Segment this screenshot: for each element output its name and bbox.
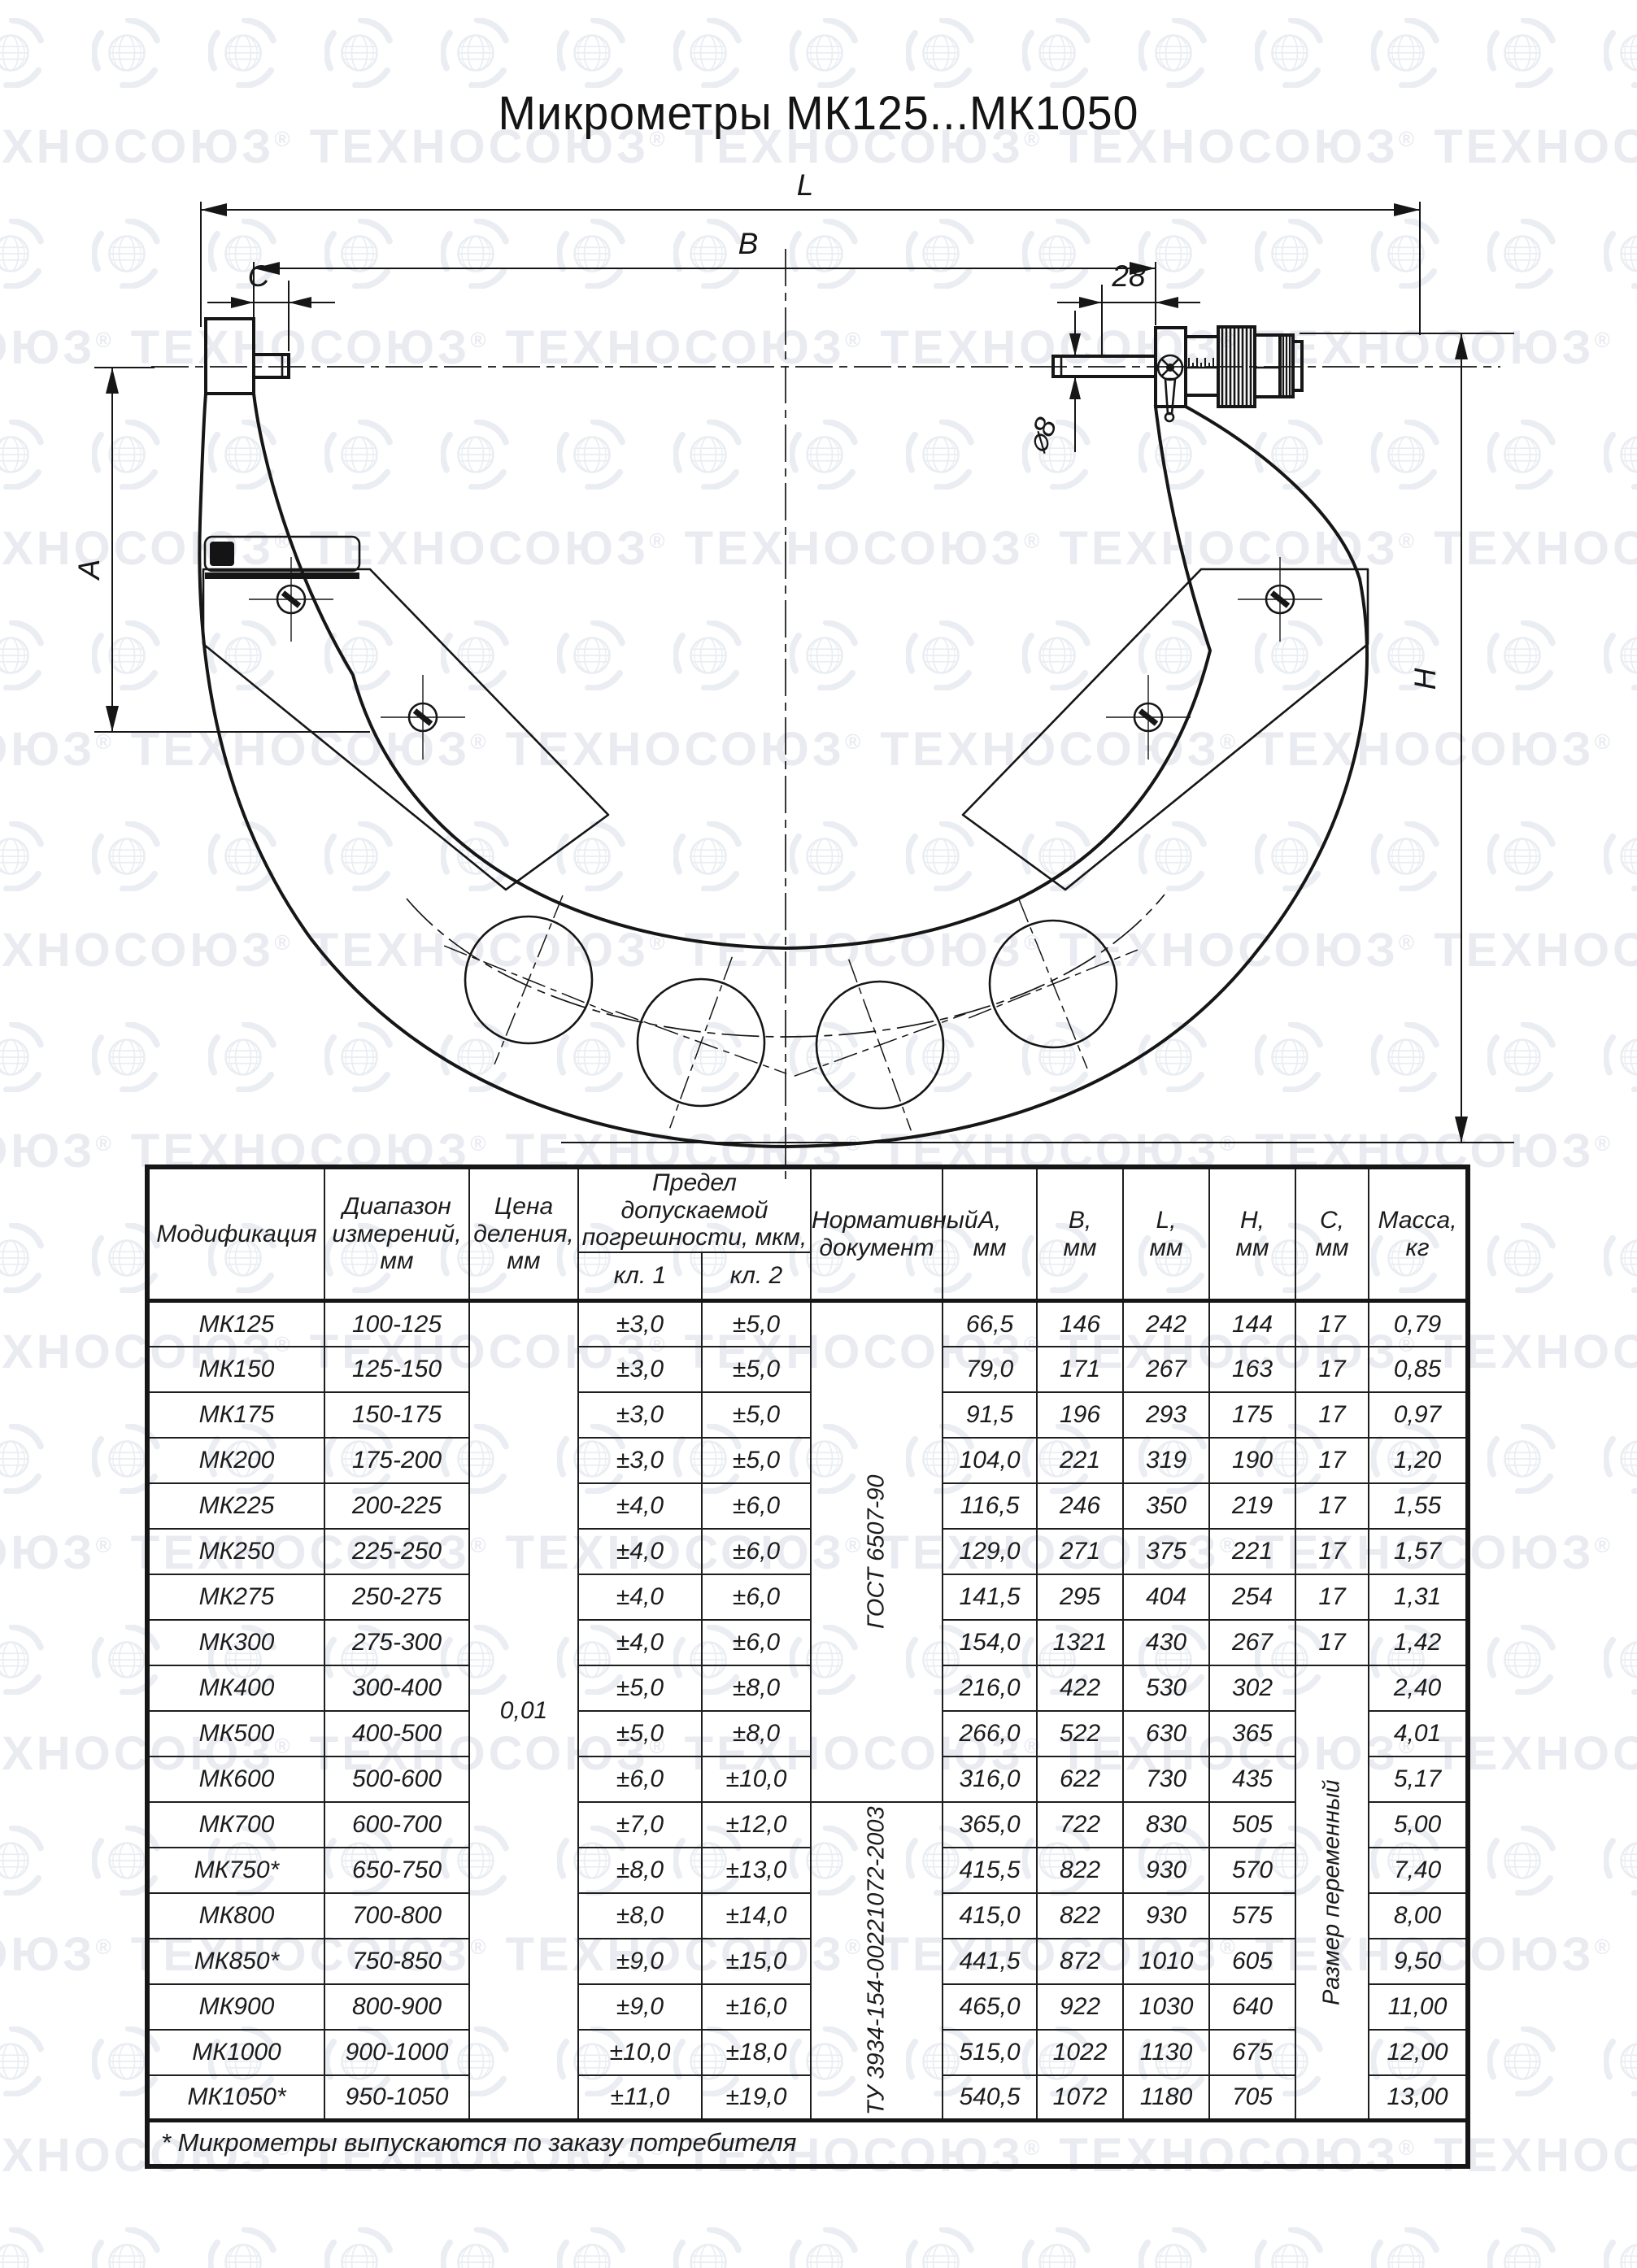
cell-a: 441,5 [943,1939,1037,1984]
cell-mass: 9,50 [1369,1939,1468,1984]
name-plate [205,537,359,576]
cell-mass: 0,85 [1369,1347,1468,1392]
dim-label-28: 28 [1111,259,1146,293]
cell-error-class2: ±12,0 [702,1802,811,1848]
watermark-globe-icon [1596,1627,1637,1703]
cell-a: 66,5 [943,1301,1037,1347]
cell-a: 216,0 [943,1665,1037,1711]
cell-b: 221 [1037,1438,1123,1483]
dimension-dia8: ⌀8 [1019,311,1081,458]
cell-range: 750-850 [324,1939,469,1984]
table-row: МК600500-600±6,0±10,0316,06227304355,17 [147,1757,1468,1802]
cell-range: 250-275 [324,1574,469,1620]
col-header-range: Диапазонизмерений,мм [324,1167,469,1301]
watermark-globe-icon [1479,1426,1552,1502]
lightening-holes [407,861,1172,1161]
cell-error-class1: ±6,0 [578,1757,702,1802]
cell-modification: МК1050* [147,2075,324,2121]
table-footnote: * Микрометры выпускаются по заказу потре… [147,2121,1468,2166]
table-row: МК200175-200±3,0±5,0104,0221319190171,20 [147,1438,1468,1483]
cell-range: 600-700 [324,1802,469,1848]
cell-h: 705 [1209,2075,1295,2121]
cell-mass: 5,00 [1369,1802,1468,1848]
cell-range: 400-500 [324,1711,469,1757]
cell-modification: МК175 [147,1392,324,1438]
frame-outline [199,394,1367,1147]
watermark-globe-icon [1247,2230,1320,2268]
cell-range: 100-125 [324,1301,469,1347]
cell-b: 622 [1037,1757,1123,1802]
col-header-modification: Модификация [147,1167,324,1301]
watermark-globe-icon [898,2230,971,2268]
cell-error-class2: ±10,0 [702,1757,811,1802]
dim-label-b: B [738,227,759,260]
cell-modification: МК400 [147,1665,324,1711]
cell-error-class1: ±3,0 [578,1301,702,1347]
cell-error-class2: ±8,0 [702,1711,811,1757]
watermark-globe-icon [200,2230,273,2268]
: ГОСТ 6507-90 [812,1304,942,1800]
cell-error-class1: ±3,0 [578,1438,702,1483]
cell-error-class2: ±5,0 [702,1347,811,1392]
cell-h: 254 [1209,1574,1295,1620]
watermark-globe-icon [1014,2230,1087,2268]
cell-mass: 2,40 [1369,1665,1468,1711]
cell-a: 141,5 [943,1574,1037,1620]
lock-lever [1158,355,1182,421]
cell-error-class1: ±10,0 [578,2030,702,2075]
watermark-globe-icon [781,2230,855,2268]
cell-error-class1: ±4,0 [578,1483,702,1529]
cell-b: 146 [1037,1301,1123,1347]
cell-h: 302 [1209,1665,1295,1711]
cell-error-class1: ±4,0 [578,1620,702,1665]
cell-mass: 13,00 [1369,2075,1468,2121]
table-row: МК225200-225±4,0±6,0116,5246350219171,55 [147,1483,1468,1529]
cell-modification: МК600 [147,1757,324,1802]
cell-range: 300-400 [324,1665,469,1711]
dimension-b: B [254,227,1156,350]
cell-b: 1022 [1037,2030,1123,2075]
cell-range: 275-300 [324,1620,469,1665]
col-header-class1: кл. 1 [578,1252,702,1301]
watermark-globe-icon [433,2230,506,2268]
cell-a: 316,0 [943,1757,1037,1802]
cell-mass: 11,00 [1369,1984,1468,2030]
cell-range: 900-1000 [324,2030,469,2075]
cell-l: 930 [1123,1893,1209,1939]
col-header-division: Ценаделения,мм [469,1167,578,1301]
cell-error-class2: ±6,0 [702,1529,811,1574]
page-title: Микрометры МК125...МК1050 [33,86,1604,141]
cell-c: 17 [1295,1438,1369,1483]
cell-a: 154,0 [943,1620,1037,1665]
watermark-globe-icon [0,1627,41,1703]
cell-c: 17 [1295,1483,1369,1529]
col-header-norm-doc: Нормативныйдокумент [811,1167,943,1301]
cell-l: 630 [1123,1711,1209,1757]
watermark-globe-icon [0,1426,41,1502]
watermark-globe-icon [1479,2230,1552,2268]
cell-c: 17 [1295,1392,1369,1438]
cell-h: 219 [1209,1483,1295,1529]
cell-mass: 1,57 [1369,1529,1468,1574]
cell-mass: 8,00 [1369,1893,1468,1939]
watermark-globe-icon [1596,1426,1637,1502]
cell-error-class1: ±3,0 [578,1392,702,1438]
cell-error-class2: ±19,0 [702,2075,811,2121]
cell-error-class2: ±5,0 [702,1392,811,1438]
cell-a: 415,0 [943,1893,1037,1939]
cell-l: 1030 [1123,1984,1209,2030]
cell-a: 79,0 [943,1347,1037,1392]
cell-h: 575 [1209,1893,1295,1939]
cell-error-class1: ±8,0 [578,1893,702,1939]
cell-b: 1072 [1037,2075,1123,2121]
dim-label-h: H [1408,668,1442,690]
cell-a: 104,0 [943,1438,1037,1483]
cell-a: 266,0 [943,1711,1037,1757]
watermark-globe-icon [0,1225,41,1301]
cell-b: 822 [1037,1848,1123,1893]
cell-a: 415,5 [943,1848,1037,1893]
cell-b: 872 [1037,1939,1123,1984]
cell-modification: МК200 [147,1438,324,1483]
cell-error-class2: ±8,0 [702,1665,811,1711]
table-row: МК850*750-850±9,0±15,0441,587210106059,5… [147,1939,1468,1984]
watermark-globe-icon [549,2230,622,2268]
watermark-globe-icon [1479,1627,1552,1703]
cell-c-variable: Размер переменный [1295,1665,1369,2121]
cell-modification: МК850* [147,1939,324,1984]
cell-range: 500-600 [324,1757,469,1802]
cell-l: 1180 [1123,2075,1209,2121]
cell-h: 175 [1209,1392,1295,1438]
cell-error-class2: ±5,0 [702,1301,811,1347]
watermark-globe-icon [1363,2230,1436,2268]
cell-modification: МК750* [147,1848,324,1893]
cell-error-class2: ±6,0 [702,1483,811,1529]
cell-h: 435 [1209,1757,1295,1802]
cell-mass: 0,97 [1369,1392,1468,1438]
cell-modification: МК500 [147,1711,324,1757]
cell-range: 800-900 [324,1984,469,2030]
cell-mass: 4,01 [1369,1711,1468,1757]
cell-b: 271 [1037,1529,1123,1574]
: ТУ 3934-154-00221072-2003 [812,1804,942,2118]
table-row: МК175150-175±3,0±5,091,5196293175170,97 [147,1392,1468,1438]
spec-table: Модификация Диапазонизмерений,мм Ценадел… [145,1164,1470,2169]
cell-modification: МК150 [147,1347,324,1392]
cell-h: 221 [1209,1529,1295,1574]
watermark-globe-icon [1130,2230,1204,2268]
dim-label-c: C [248,259,270,293]
cell-h: 675 [1209,2030,1295,2075]
table-row: МК800700-800±8,0±14,0415,08229305758,00 [147,1893,1468,1939]
table-row: МК125100-1250,01±3,0±5,0ГОСТ 6507-9066,5… [147,1301,1468,1347]
col-header-class2: кл. 2 [702,1252,811,1301]
col-header-c: С,мм [1295,1167,1369,1301]
cell-mass: 1,20 [1369,1438,1468,1483]
cell-range: 700-800 [324,1893,469,1939]
cell-l: 830 [1123,1802,1209,1848]
cell-l: 375 [1123,1529,1209,1574]
watermark-globe-icon [0,2029,41,2105]
table-row: МК700600-700±7,0±12,0ТУ 3934-154-0022107… [147,1802,1468,1848]
cell-error-class1: ±3,0 [578,1347,702,1392]
cell-a: 116,5 [943,1483,1037,1529]
cell-mass: 5,17 [1369,1757,1468,1802]
cell-mass: 1,31 [1369,1574,1468,1620]
dim-label-l: L [797,168,814,202]
cell-c: 17 [1295,1301,1369,1347]
cell-l: 930 [1123,1848,1209,1893]
cell-b: 922 [1037,1984,1123,2030]
cell-range: 175-200 [324,1438,469,1483]
cell-b: 295 [1037,1574,1123,1620]
cell-modification: МК1000 [147,2030,324,2075]
cell-modification: МК300 [147,1620,324,1665]
cell-error-class1: ±11,0 [578,2075,702,2121]
cell-modification: МК225 [147,1483,324,1529]
norm-doc-tu-label: ТУ 3934-154-00221072-2003 [864,1806,890,2115]
page: { "watermark": { "brand": "ТЕХНОСОЮЗ", "… [0,0,1637,2268]
cell-error-class2: ±6,0 [702,1620,811,1665]
cell-error-class1: ±8,0 [578,1848,702,1893]
watermark-globe-icon [1479,1828,1552,1904]
dimension-c: C [207,259,335,351]
table-row: МК500400-500±5,0±8,0266,05226303654,01 [147,1711,1468,1757]
cell-error-class2: ±5,0 [702,1438,811,1483]
cell-mass: 0,79 [1369,1301,1468,1347]
cell-b: 522 [1037,1711,1123,1757]
cell-range: 125-150 [324,1347,469,1392]
cell-l: 293 [1123,1392,1209,1438]
cell-b: 822 [1037,1893,1123,1939]
watermark-globe-icon [665,2230,738,2268]
cell-modification: МК700 [147,1802,324,1848]
cell-l: 1130 [1123,2030,1209,2075]
cell-h: 365 [1209,1711,1295,1757]
watermark-globe-icon [0,1828,41,1904]
cell-c: 17 [1295,1574,1369,1620]
watermark-globe-icon [1596,1828,1637,1904]
cell-c: 17 [1295,1620,1369,1665]
cell-a: 129,0 [943,1529,1037,1574]
cell-l: 350 [1123,1483,1209,1529]
cell-mass: 12,00 [1369,2030,1468,2075]
cell-norm-doc-tu: ТУ 3934-154-00221072-2003 [811,1802,943,2121]
cell-b: 422 [1037,1665,1123,1711]
cell-b: 722 [1037,1802,1123,1848]
cell-error-class2: ±18,0 [702,2030,811,2075]
dimension-l: L [201,168,1420,335]
cell-error-class2: ±16,0 [702,1984,811,2030]
col-header-error: Предел допускаемойпогрешности, мкм, [578,1167,811,1252]
cell-error-class1: ±5,0 [578,1711,702,1757]
cell-range: 150-175 [324,1392,469,1438]
watermark-globe-icon [1596,2230,1637,2268]
table-row: МК900800-900±9,0±16,0465,0922103064011,0… [147,1984,1468,2030]
micrometer-drawing: L B C 28 ⌀8 [0,0,1637,1187]
table-row: МК150125-150±3,0±5,079,0171267163170,85 [147,1347,1468,1392]
cell-b: 196 [1037,1392,1123,1438]
table-row: МК750*650-750±8,0±13,0415,58229305707,40 [147,1848,1468,1893]
watermark-globe-icon [84,2230,157,2268]
cell-modification: МК800 [147,1893,324,1939]
cell-error-class2: ±14,0 [702,1893,811,1939]
table-row: МК1050*950-1050±11,0±19,0540,51072118070… [147,2075,1468,2121]
cell-a: 365,0 [943,1802,1037,1848]
table-row: МК400300-400±5,0±8,0216,0422530302Размер… [147,1665,1468,1711]
cell-norm-doc-gost: ГОСТ 6507-90 [811,1301,943,1802]
table-row: МК1000900-1000±10,0±18,0515,010221130675… [147,2030,1468,2075]
cell-range: 200-225 [324,1483,469,1529]
cell-h: 163 [1209,1347,1295,1392]
watermark-globe-icon [1596,2029,1637,2105]
cell-error-class2: ±15,0 [702,1939,811,1984]
cell-error-class2: ±13,0 [702,1848,811,1893]
size-variable-label: Размер переменный [1319,1779,1345,2005]
centerlines [151,249,1500,1181]
cell-modification: МК125 [147,1301,324,1347]
cell-h: 640 [1209,1984,1295,2030]
cell-error-class1: ±4,0 [578,1574,702,1620]
cell-error-class1: ±5,0 [578,1665,702,1711]
cell-h: 605 [1209,1939,1295,1984]
cell-division-value: 0,01 [469,1301,578,2121]
cell-h: 570 [1209,1848,1295,1893]
brand-logo-icon [210,542,234,566]
col-header-a: А,мм [943,1167,1037,1301]
cell-b: 171 [1037,1347,1123,1392]
cell-h: 190 [1209,1438,1295,1483]
cell-error-class1: ±4,0 [578,1529,702,1574]
left-anvil [206,319,289,394]
watermark-globe-icon [1596,1225,1637,1301]
table-row: МК250225-250±4,0±6,0129,0271375221171,57 [147,1529,1468,1574]
: Размер переменный [1296,1667,1368,2118]
cell-error-class1: ±7,0 [578,1802,702,1848]
cell-range: 950-1050 [324,2075,469,2121]
watermark-globe-icon [0,2230,41,2268]
watermark-globe-icon [1479,2029,1552,2105]
col-header-b: В,мм [1037,1167,1123,1301]
cell-c: 17 [1295,1529,1369,1574]
cell-mass: 1,42 [1369,1620,1468,1665]
cell-mass: 7,40 [1369,1848,1468,1893]
cell-l: 319 [1123,1438,1209,1483]
cell-modification: МК250 [147,1529,324,1574]
col-header-mass: Масса,кг [1369,1167,1468,1301]
cell-h: 144 [1209,1301,1295,1347]
cell-h: 267 [1209,1620,1295,1665]
col-header-h: Н,мм [1209,1167,1295,1301]
table-row: МК300275-300±4,0±6,0154,01321430267171,4… [147,1620,1468,1665]
cell-mass: 1,55 [1369,1483,1468,1529]
cell-range: 225-250 [324,1529,469,1574]
cell-error-class2: ±6,0 [702,1574,811,1620]
micrometer-head [1053,327,1302,421]
cell-c: 17 [1295,1347,1369,1392]
cell-error-class1: ±9,0 [578,1939,702,1984]
cell-l: 430 [1123,1620,1209,1665]
watermark-globe-icon [316,2230,390,2268]
cell-l: 730 [1123,1757,1209,1802]
dim-label-dia8: ⌀8 [1019,412,1063,457]
cell-l: 1010 [1123,1939,1209,1984]
watermark-globe-icon [1479,1225,1552,1301]
cell-b: 246 [1037,1483,1123,1529]
cell-l: 530 [1123,1665,1209,1711]
cell-l: 404 [1123,1574,1209,1620]
cell-modification: МК275 [147,1574,324,1620]
cell-b: 1321 [1037,1620,1123,1665]
cell-h: 505 [1209,1802,1295,1848]
cell-error-class1: ±9,0 [578,1984,702,2030]
cell-l: 242 [1123,1301,1209,1347]
cell-a: 91,5 [943,1392,1037,1438]
cell-a: 515,0 [943,2030,1037,2075]
dim-label-a: A [72,559,106,581]
cell-l: 267 [1123,1347,1209,1392]
cell-a: 540,5 [943,2075,1037,2121]
cell-a: 465,0 [943,1984,1037,2030]
cell-modification: МК900 [147,1984,324,2030]
table-row: МК275250-275±4,0±6,0141,5295404254171,31 [147,1574,1468,1620]
norm-doc-gost-label: ГОСТ 6507-90 [864,1475,890,1630]
cell-range: 650-750 [324,1848,469,1893]
col-header-l: L,мм [1123,1167,1209,1301]
